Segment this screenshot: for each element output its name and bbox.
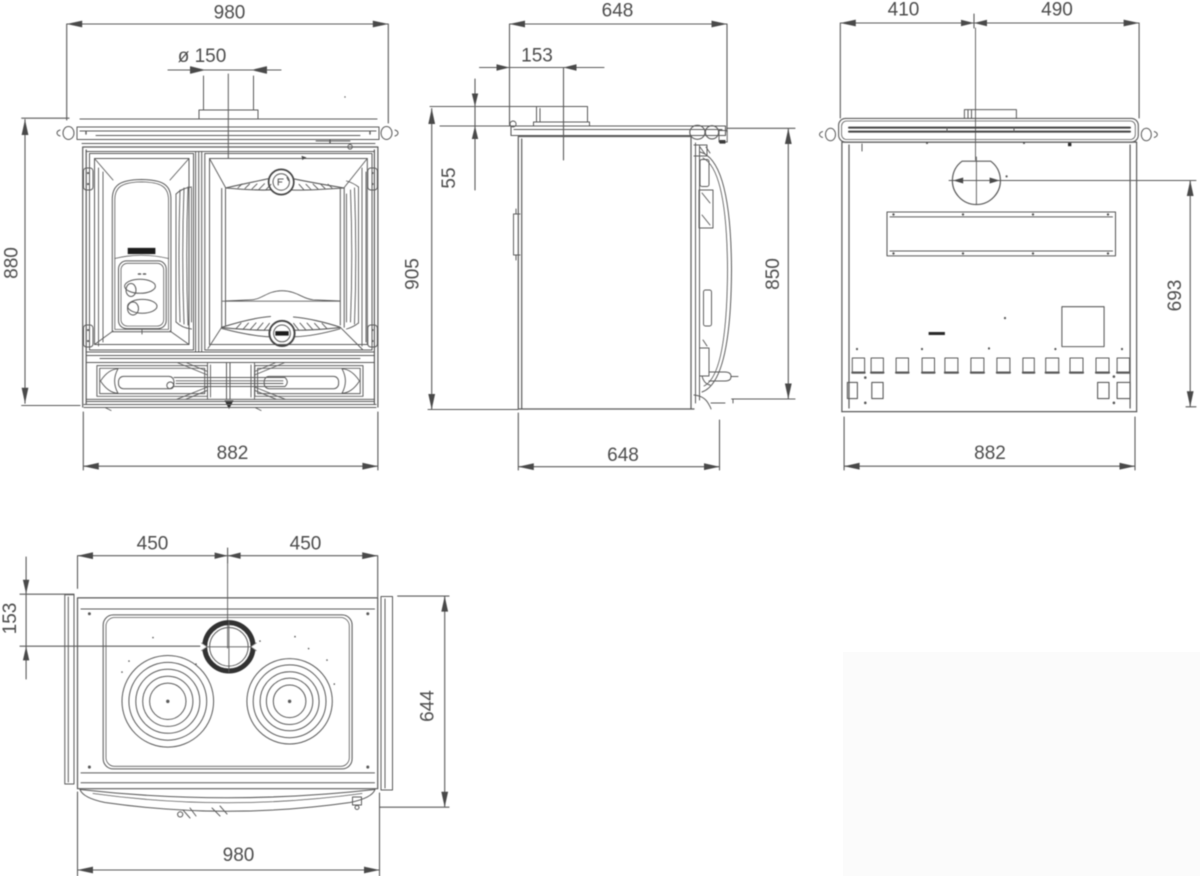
svg-text:644: 644 xyxy=(418,690,439,722)
svg-text:882: 882 xyxy=(974,443,1006,464)
svg-text:490: 490 xyxy=(1041,0,1073,21)
svg-text:980: 980 xyxy=(223,845,255,866)
svg-text:450: 450 xyxy=(290,534,322,555)
svg-text:648: 648 xyxy=(602,1,634,22)
svg-text:850: 850 xyxy=(763,258,784,290)
svg-text:55: 55 xyxy=(439,167,460,188)
svg-text:980: 980 xyxy=(214,3,246,24)
svg-text:880: 880 xyxy=(2,247,23,279)
svg-text:693: 693 xyxy=(1165,280,1186,312)
svg-text:ø 150: ø 150 xyxy=(178,46,227,67)
svg-text:648: 648 xyxy=(607,445,639,466)
svg-text:410: 410 xyxy=(888,0,920,21)
svg-text:905: 905 xyxy=(403,258,424,290)
svg-text:450: 450 xyxy=(137,534,169,555)
svg-text:153: 153 xyxy=(0,603,21,635)
svg-text:153: 153 xyxy=(521,46,553,67)
svg-text:882: 882 xyxy=(217,443,249,464)
